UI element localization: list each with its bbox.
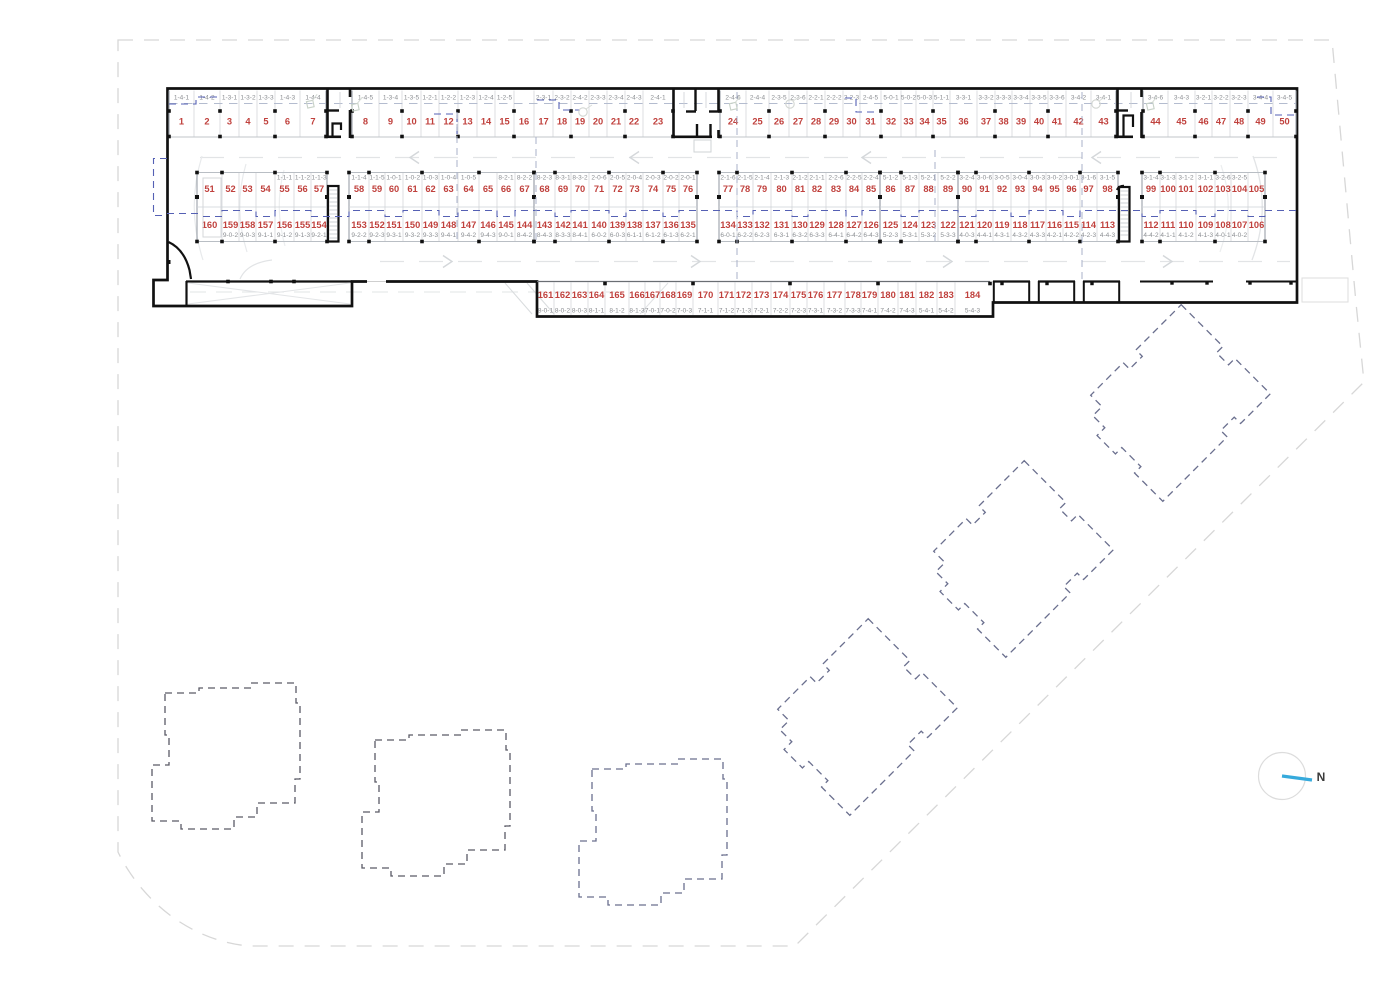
svg-text:2-1-3: 2-1-3 [774, 175, 790, 182]
svg-text:73: 73 [629, 184, 639, 194]
svg-text:3-2-6: 3-2-6 [1215, 175, 1231, 182]
svg-text:104: 104 [1232, 184, 1248, 194]
svg-text:1-2-4: 1-2-4 [478, 95, 494, 102]
svg-text:157: 157 [258, 220, 274, 230]
svg-text:1-2-1: 1-2-1 [422, 95, 438, 102]
svg-text:18: 18 [557, 117, 567, 127]
svg-text:5-4-1: 5-4-1 [919, 308, 935, 315]
svg-text:39: 39 [1016, 117, 1026, 127]
svg-text:158: 158 [240, 220, 256, 230]
svg-text:3-3-4: 3-3-4 [1013, 95, 1029, 102]
svg-text:147: 147 [461, 220, 477, 230]
svg-text:2-2-1: 2-2-1 [808, 95, 824, 102]
svg-text:156: 156 [277, 220, 293, 230]
svg-text:110: 110 [1179, 220, 1194, 230]
svg-text:183: 183 [938, 290, 954, 300]
svg-text:60: 60 [389, 184, 399, 194]
svg-text:165: 165 [609, 290, 625, 300]
svg-text:95: 95 [1049, 184, 1059, 194]
svg-text:182: 182 [919, 290, 935, 300]
svg-text:27: 27 [793, 117, 803, 127]
svg-text:155: 155 [295, 220, 311, 230]
svg-text:49: 49 [1255, 117, 1265, 127]
svg-text:139: 139 [610, 220, 626, 230]
svg-text:108: 108 [1215, 220, 1231, 230]
svg-text:6-4-2: 6-4-2 [846, 232, 862, 239]
svg-text:173: 173 [754, 290, 770, 300]
svg-text:4-3-2: 4-3-2 [1012, 232, 1028, 239]
svg-text:81: 81 [795, 184, 805, 194]
svg-text:2-0-2: 2-0-2 [663, 175, 679, 182]
svg-text:5-0-2: 5-0-2 [901, 95, 917, 102]
svg-text:133: 133 [737, 220, 753, 230]
svg-text:1-3-1: 1-3-1 [222, 95, 238, 102]
svg-text:5-3-2: 5-3-2 [921, 232, 937, 239]
svg-text:86: 86 [885, 184, 895, 194]
svg-text:59: 59 [372, 184, 382, 194]
svg-text:179: 179 [862, 290, 878, 300]
svg-text:19: 19 [575, 117, 585, 127]
svg-text:48: 48 [1234, 117, 1244, 127]
svg-text:120: 120 [977, 220, 993, 230]
svg-text:6-0-1: 6-0-1 [720, 232, 736, 239]
svg-text:146: 146 [480, 220, 496, 230]
svg-text:4-4-1: 4-4-1 [977, 232, 993, 239]
svg-text:159: 159 [223, 220, 239, 230]
svg-text:62: 62 [425, 184, 435, 194]
svg-text:115: 115 [1064, 220, 1079, 230]
svg-text:16: 16 [519, 117, 529, 127]
svg-text:1-0-5: 1-0-5 [461, 175, 477, 182]
svg-text:100: 100 [1160, 184, 1176, 194]
svg-text:6-3-1: 6-3-1 [774, 232, 790, 239]
svg-text:4-1-3: 4-1-3 [1198, 232, 1214, 239]
svg-text:148: 148 [441, 220, 457, 230]
svg-text:3-3-2: 3-3-2 [978, 95, 994, 102]
svg-text:3-1-3: 3-1-3 [1160, 175, 1176, 182]
svg-text:160: 160 [202, 220, 218, 230]
svg-text:6-0-3: 6-0-3 [610, 232, 626, 239]
svg-text:9-0-3: 9-0-3 [240, 232, 256, 239]
svg-text:51: 51 [204, 184, 214, 194]
svg-text:1-3-4: 1-3-4 [383, 95, 399, 102]
svg-text:98: 98 [1102, 184, 1112, 194]
svg-text:142: 142 [555, 220, 571, 230]
svg-text:26: 26 [774, 117, 784, 127]
svg-text:7: 7 [310, 117, 315, 127]
svg-text:145: 145 [498, 220, 514, 230]
svg-text:41: 41 [1052, 117, 1062, 127]
svg-text:57: 57 [314, 184, 324, 194]
svg-text:1-2-5: 1-2-5 [497, 95, 513, 102]
svg-text:3-1-5: 3-1-5 [1100, 175, 1116, 182]
svg-text:31: 31 [865, 117, 875, 127]
svg-text:8-3-1: 8-3-1 [555, 175, 571, 182]
svg-text:8-3-2: 8-3-2 [572, 175, 588, 182]
svg-text:2-2-2: 2-2-2 [826, 95, 842, 102]
svg-text:125: 125 [883, 220, 899, 230]
svg-text:113: 113 [1100, 220, 1115, 230]
svg-text:107: 107 [1232, 220, 1248, 230]
svg-text:3-0-4: 3-0-4 [1012, 175, 1028, 182]
svg-text:33: 33 [903, 117, 913, 127]
svg-text:175: 175 [791, 290, 807, 300]
svg-text:8-4-3: 8-4-3 [537, 232, 553, 239]
svg-text:106: 106 [1249, 220, 1265, 230]
svg-text:2-3-3: 2-3-3 [590, 95, 606, 102]
svg-text:118: 118 [1013, 220, 1028, 230]
svg-text:3-1-1: 3-1-1 [1198, 175, 1214, 182]
svg-text:2-3-4: 2-3-4 [608, 95, 624, 102]
svg-text:121: 121 [959, 220, 975, 230]
svg-text:6-1-2: 6-1-2 [645, 232, 661, 239]
svg-text:91: 91 [979, 184, 989, 194]
svg-text:3-1-2: 3-1-2 [1178, 175, 1194, 182]
svg-text:6-4-3: 6-4-3 [863, 232, 879, 239]
svg-text:7-2-2: 7-2-2 [773, 308, 789, 315]
svg-text:184: 184 [965, 290, 981, 300]
svg-text:1-2-2: 1-2-2 [441, 95, 457, 102]
svg-text:3-0-1: 3-0-1 [1064, 175, 1080, 182]
svg-text:5-3-3: 5-3-3 [940, 232, 956, 239]
svg-text:77: 77 [723, 184, 733, 194]
svg-text:2-1-5: 2-1-5 [737, 175, 753, 182]
svg-text:6-3-2: 6-3-2 [792, 232, 808, 239]
svg-text:2-2-4: 2-2-4 [863, 175, 879, 182]
svg-text:174: 174 [773, 290, 789, 300]
svg-text:3-0-5: 3-0-5 [994, 175, 1010, 182]
svg-text:143: 143 [537, 220, 553, 230]
svg-text:1-4-1: 1-4-1 [174, 95, 190, 102]
svg-text:2-0-4: 2-0-4 [627, 175, 643, 182]
svg-text:9-1-2: 9-1-2 [277, 232, 293, 239]
svg-text:144: 144 [517, 220, 533, 230]
svg-text:9-3-2: 9-3-2 [405, 232, 421, 239]
svg-text:3-4-2: 3-4-2 [1071, 95, 1087, 102]
svg-text:78: 78 [740, 184, 750, 194]
svg-text:9-3-1: 9-3-1 [386, 232, 402, 239]
svg-text:8-3-3: 8-3-3 [555, 232, 571, 239]
svg-text:83: 83 [831, 184, 841, 194]
svg-text:132: 132 [754, 220, 770, 230]
svg-text:94: 94 [1032, 184, 1043, 194]
svg-text:3-4-3: 3-4-3 [1174, 95, 1190, 102]
svg-text:1-1-3: 1-1-3 [311, 175, 327, 182]
svg-text:152: 152 [369, 220, 385, 230]
svg-text:80: 80 [776, 184, 786, 194]
svg-text:52: 52 [225, 184, 235, 194]
svg-text:3-1-6: 3-1-6 [1081, 175, 1097, 182]
svg-text:7-3-2: 7-3-2 [827, 308, 843, 315]
svg-text:7-4-3: 7-4-3 [899, 308, 915, 315]
svg-text:9-4-2: 9-4-2 [461, 232, 477, 239]
svg-text:11: 11 [425, 117, 435, 127]
svg-text:134: 134 [720, 220, 736, 230]
svg-text:8-0-2: 8-0-2 [555, 308, 571, 315]
svg-text:163: 163 [572, 290, 588, 300]
svg-text:171: 171 [719, 290, 735, 300]
svg-text:5-1-1: 5-1-1 [934, 95, 950, 102]
svg-text:7-3-3: 7-3-3 [845, 308, 861, 315]
svg-text:3-4-4: 3-4-4 [1253, 95, 1269, 102]
svg-text:88: 88 [923, 184, 933, 194]
svg-text:1-0-3: 1-0-3 [423, 175, 439, 182]
svg-text:1-1-2: 1-1-2 [295, 175, 311, 182]
svg-text:1-4-3: 1-4-3 [280, 95, 296, 102]
svg-text:4-2-3: 4-2-3 [1081, 232, 1097, 239]
svg-text:9-2-2: 9-2-2 [351, 232, 367, 239]
svg-text:2-4-5: 2-4-5 [863, 95, 879, 102]
svg-text:8-1-3: 8-1-3 [629, 308, 645, 315]
svg-text:9-0-2: 9-0-2 [223, 232, 239, 239]
svg-text:87: 87 [905, 184, 915, 194]
svg-text:84: 84 [849, 184, 860, 194]
svg-text:N: N [1317, 770, 1326, 784]
svg-text:4-4-3: 4-4-3 [1100, 232, 1116, 239]
svg-text:85: 85 [866, 184, 876, 194]
svg-text:166: 166 [629, 290, 645, 300]
svg-text:29: 29 [829, 117, 839, 127]
svg-text:3-3-5: 3-3-5 [1031, 95, 1047, 102]
svg-text:68: 68 [539, 184, 549, 194]
svg-text:2-2-5: 2-2-5 [846, 175, 862, 182]
svg-text:2-0-1: 2-0-1 [680, 175, 696, 182]
svg-text:4-3-3: 4-3-3 [1030, 232, 1046, 239]
svg-text:6-3-3: 6-3-3 [809, 232, 825, 239]
svg-text:9-4-3: 9-4-3 [480, 232, 496, 239]
svg-text:140: 140 [591, 220, 607, 230]
svg-text:112: 112 [1144, 220, 1159, 230]
svg-text:5-0-3: 5-0-3 [917, 95, 933, 102]
svg-text:25: 25 [752, 117, 762, 127]
svg-text:4-3-1: 4-3-1 [994, 232, 1010, 239]
svg-text:30: 30 [846, 117, 856, 127]
svg-text:1-0-2: 1-0-2 [405, 175, 421, 182]
svg-text:8-2-3: 8-2-3 [537, 175, 553, 182]
svg-text:3-4-5: 3-4-5 [1277, 95, 1293, 102]
svg-text:4-4-2: 4-4-2 [1143, 232, 1159, 239]
svg-text:153: 153 [351, 220, 367, 230]
svg-text:1-1-4: 1-1-4 [351, 175, 367, 182]
svg-text:74: 74 [648, 184, 659, 194]
svg-text:168: 168 [660, 290, 676, 300]
svg-text:3-2-2: 3-2-2 [1213, 95, 1229, 102]
svg-text:177: 177 [827, 290, 843, 300]
svg-text:70: 70 [575, 184, 585, 194]
svg-text:1-0-4: 1-0-4 [441, 175, 457, 182]
svg-text:8-0-1: 8-0-1 [538, 308, 554, 315]
svg-text:4-1-1: 4-1-1 [1160, 232, 1176, 239]
svg-text:2-0-3: 2-0-3 [645, 175, 661, 182]
svg-text:162: 162 [555, 290, 571, 300]
svg-text:3-3-6: 3-3-6 [1049, 95, 1065, 102]
svg-text:4: 4 [245, 117, 251, 127]
svg-text:32: 32 [886, 117, 896, 127]
svg-text:82: 82 [812, 184, 822, 194]
svg-text:161: 161 [538, 290, 554, 300]
svg-text:8-0-3: 8-0-3 [572, 308, 588, 315]
svg-text:7-0-1: 7-0-1 [645, 308, 661, 315]
svg-text:71: 71 [594, 184, 604, 194]
svg-text:3-2-4: 3-2-4 [959, 175, 975, 182]
svg-text:102: 102 [1198, 184, 1214, 194]
svg-text:105: 105 [1249, 184, 1265, 194]
svg-text:6-2-3: 6-2-3 [754, 232, 770, 239]
svg-text:89: 89 [943, 184, 953, 194]
svg-text:43: 43 [1098, 117, 1108, 127]
svg-text:2-1-4: 2-1-4 [754, 175, 770, 182]
svg-text:1-4-2: 1-4-2 [199, 95, 215, 102]
svg-text:20: 20 [593, 117, 603, 127]
svg-text:1-1-1: 1-1-1 [277, 175, 293, 182]
svg-text:10: 10 [406, 117, 416, 127]
svg-text:40: 40 [1034, 117, 1044, 127]
svg-text:56: 56 [297, 184, 307, 194]
svg-text:5-1-3: 5-1-3 [902, 175, 918, 182]
svg-text:170: 170 [698, 290, 714, 300]
svg-text:8-1-1: 8-1-1 [589, 308, 605, 315]
svg-text:34: 34 [919, 117, 930, 127]
svg-text:4-0-2: 4-0-2 [1232, 232, 1248, 239]
svg-text:128: 128 [828, 220, 844, 230]
svg-text:111: 111 [1161, 220, 1176, 230]
svg-text:64: 64 [463, 184, 474, 194]
svg-text:65: 65 [483, 184, 493, 194]
svg-text:114: 114 [1081, 220, 1097, 230]
svg-text:8-4-1: 8-4-1 [572, 232, 588, 239]
svg-text:1-3-3: 1-3-3 [258, 95, 274, 102]
svg-text:35: 35 [936, 117, 946, 127]
svg-text:2-3-2: 2-3-2 [554, 95, 570, 102]
svg-text:47: 47 [1216, 117, 1226, 127]
svg-text:36: 36 [958, 117, 968, 127]
svg-text:37: 37 [981, 117, 991, 127]
svg-text:3-2-5: 3-2-5 [1232, 175, 1248, 182]
svg-text:180: 180 [880, 290, 896, 300]
svg-text:4-0-1: 4-0-1 [1215, 232, 1231, 239]
svg-text:22: 22 [629, 117, 639, 127]
svg-text:5-4-2: 5-4-2 [938, 308, 954, 315]
svg-text:67: 67 [519, 184, 529, 194]
svg-text:2-0-6: 2-0-6 [591, 175, 607, 182]
svg-text:6-2-2: 6-2-2 [737, 232, 753, 239]
svg-text:7-1-2: 7-1-2 [719, 308, 735, 315]
svg-text:9-0-1: 9-0-1 [498, 232, 514, 239]
svg-text:116: 116 [1047, 220, 1062, 230]
svg-text:3-1-4: 3-1-4 [1143, 175, 1159, 182]
svg-text:5-2-2: 5-2-2 [940, 175, 956, 182]
svg-text:90: 90 [962, 184, 972, 194]
svg-text:1-2-3: 1-2-3 [460, 95, 476, 102]
svg-text:154: 154 [311, 220, 327, 230]
svg-text:5-0-1: 5-0-1 [883, 95, 899, 102]
svg-text:8-2-2: 8-2-2 [517, 175, 533, 182]
svg-text:7-0-3: 7-0-3 [677, 308, 693, 315]
svg-text:8-2-1: 8-2-1 [498, 175, 514, 182]
svg-text:54: 54 [260, 184, 271, 194]
svg-text:4-2-1: 4-2-1 [1047, 232, 1063, 239]
svg-text:124: 124 [902, 220, 918, 230]
svg-text:75: 75 [666, 184, 676, 194]
svg-text:14: 14 [481, 117, 492, 127]
svg-text:44: 44 [1150, 117, 1161, 127]
svg-text:61: 61 [407, 184, 417, 194]
svg-text:97: 97 [1083, 184, 1093, 194]
svg-text:8-4-2: 8-4-2 [517, 232, 533, 239]
svg-text:122: 122 [940, 220, 956, 230]
svg-text:9-2-1: 9-2-1 [311, 232, 327, 239]
svg-text:6: 6 [285, 117, 290, 127]
svg-text:21: 21 [611, 117, 621, 127]
svg-text:38: 38 [998, 117, 1008, 127]
svg-text:7-1-1: 7-1-1 [698, 308, 714, 315]
svg-text:3-0-2: 3-0-2 [1047, 175, 1063, 182]
svg-text:141: 141 [572, 220, 588, 230]
svg-text:3-3-3: 3-3-3 [996, 95, 1012, 102]
svg-text:2-0-5: 2-0-5 [610, 175, 626, 182]
svg-text:2-2-6: 2-2-6 [828, 175, 844, 182]
svg-text:28: 28 [811, 117, 821, 127]
svg-text:2-4-3: 2-4-3 [626, 95, 642, 102]
svg-text:92: 92 [997, 184, 1007, 194]
svg-text:8: 8 [363, 117, 368, 127]
svg-text:3-2-3: 3-2-3 [1231, 95, 1247, 102]
svg-text:4-2-2: 4-2-2 [1064, 232, 1080, 239]
svg-text:2-4-4: 2-4-4 [750, 95, 766, 102]
svg-text:7-4-1: 7-4-1 [862, 308, 878, 315]
svg-text:7-4-2: 7-4-2 [880, 308, 896, 315]
svg-text:167: 167 [645, 290, 661, 300]
svg-text:103: 103 [1215, 184, 1231, 194]
svg-text:5-1-2: 5-1-2 [883, 175, 899, 182]
svg-text:123: 123 [921, 220, 937, 230]
svg-text:1-1-5: 1-1-5 [369, 175, 385, 182]
svg-text:5-4-3: 5-4-3 [965, 308, 981, 315]
svg-text:178: 178 [845, 290, 861, 300]
svg-text:72: 72 [612, 184, 622, 194]
svg-text:7-2-3: 7-2-3 [791, 308, 807, 315]
svg-text:9-3-3: 9-3-3 [423, 232, 439, 239]
svg-text:176: 176 [808, 290, 824, 300]
svg-text:5-3-1: 5-3-1 [902, 232, 918, 239]
svg-text:99: 99 [1146, 184, 1156, 194]
svg-text:2-3-5: 2-3-5 [771, 95, 787, 102]
svg-text:17: 17 [538, 117, 548, 127]
svg-text:79: 79 [757, 184, 767, 194]
svg-text:5: 5 [263, 117, 268, 127]
svg-text:9: 9 [388, 117, 393, 127]
svg-text:4-1-2: 4-1-2 [1178, 232, 1194, 239]
svg-text:126: 126 [863, 220, 879, 230]
svg-text:55: 55 [279, 184, 289, 194]
svg-text:2-1-2: 2-1-2 [792, 175, 808, 182]
svg-text:7-3-1: 7-3-1 [808, 308, 824, 315]
svg-text:135: 135 [680, 220, 696, 230]
svg-text:3-2-1: 3-2-1 [1196, 95, 1212, 102]
svg-text:15: 15 [499, 117, 509, 127]
svg-text:117: 117 [1030, 220, 1045, 230]
svg-text:66: 66 [501, 184, 511, 194]
svg-text:45: 45 [1176, 117, 1186, 127]
svg-text:5-2-1: 5-2-1 [921, 175, 937, 182]
svg-text:2: 2 [204, 117, 209, 127]
svg-text:6-4-1: 6-4-1 [828, 232, 844, 239]
svg-text:149: 149 [423, 220, 439, 230]
svg-text:23: 23 [653, 117, 663, 127]
svg-text:1-3-5: 1-3-5 [404, 95, 420, 102]
svg-text:151: 151 [386, 220, 402, 230]
svg-text:130: 130 [792, 220, 808, 230]
